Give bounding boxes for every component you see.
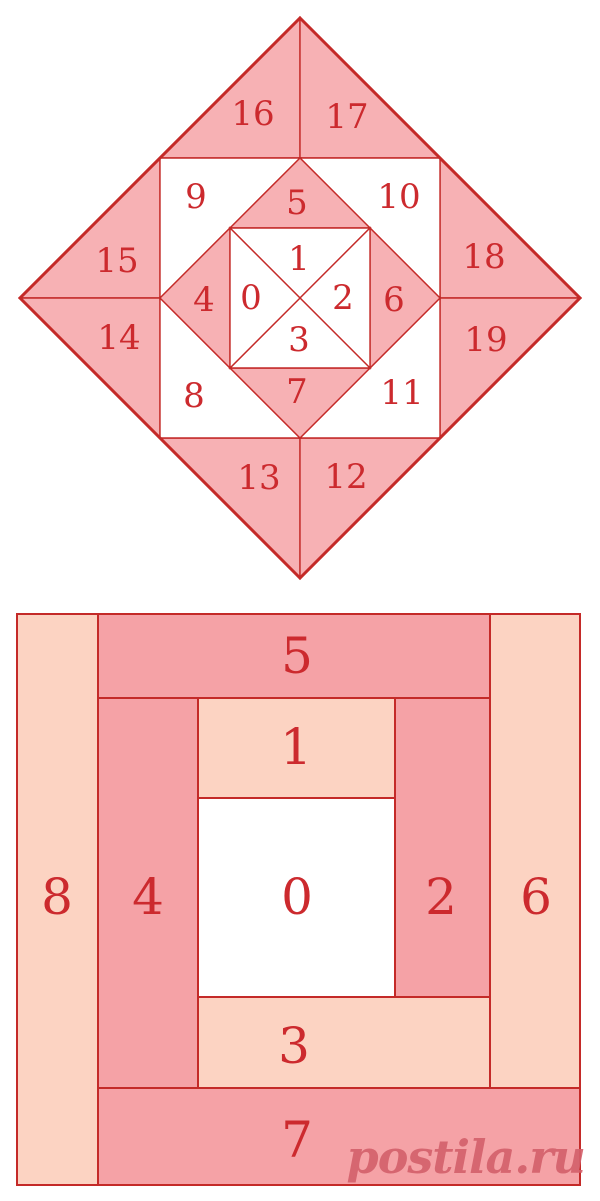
square-in-square-block: 161715141819131291081156741230 [20, 18, 580, 578]
square-in-square-block-label-4: 4 [193, 280, 215, 320]
log-cabin-block-label-1: 1 [280, 718, 312, 776]
square-in-square-block-label-0: 0 [240, 278, 262, 318]
quilt-pattern-page: 161715141819131291081156741230856741230 … [0, 0, 600, 1201]
log-cabin-block-label-4: 4 [132, 868, 164, 926]
square-in-square-block-label-8: 8 [183, 376, 205, 416]
log-cabin-block-piece-6 [490, 614, 580, 1088]
log-cabin-block-label-7: 7 [281, 1111, 313, 1169]
log-cabin-block-label-0: 0 [281, 868, 313, 926]
square-in-square-block-label-7: 7 [286, 372, 308, 412]
log-cabin-block-piece-3 [198, 997, 490, 1088]
square-in-square-block-label-13: 13 [237, 458, 280, 498]
square-in-square-block-label-15: 15 [95, 241, 138, 281]
square-in-square-block-label-1: 1 [288, 239, 310, 279]
log-cabin-block: 856741230 [17, 614, 580, 1185]
log-cabin-block-label-3: 3 [278, 1017, 310, 1075]
log-cabin-block-label-2: 2 [425, 868, 457, 926]
square-in-square-block-label-17: 17 [325, 97, 368, 137]
square-in-square-block-label-2: 2 [332, 278, 354, 318]
square-in-square-block-label-14: 14 [97, 318, 140, 358]
square-in-square-block-label-19: 19 [464, 320, 507, 360]
square-in-square-block-label-11: 11 [380, 373, 423, 413]
square-in-square-block-label-18: 18 [462, 237, 505, 277]
log-cabin-block-label-6: 6 [520, 868, 552, 926]
log-cabin-block-piece-7 [98, 1088, 580, 1185]
square-in-square-block-label-16: 16 [231, 94, 274, 134]
square-in-square-block-label-10: 10 [377, 177, 420, 217]
square-in-square-block-label-6: 6 [383, 280, 405, 320]
log-cabin-block-label-5: 5 [281, 627, 313, 685]
log-cabin-block-label-8: 8 [41, 868, 73, 926]
quilt-pattern-svg: 161715141819131291081156741230856741230 [0, 0, 600, 1201]
square-in-square-block-label-12: 12 [324, 457, 367, 497]
log-cabin-block-piece-2 [395, 698, 490, 997]
square-in-square-block-label-9: 9 [185, 177, 207, 217]
square-in-square-block-label-3: 3 [288, 320, 310, 360]
square-in-square-block-label-5: 5 [286, 183, 308, 223]
